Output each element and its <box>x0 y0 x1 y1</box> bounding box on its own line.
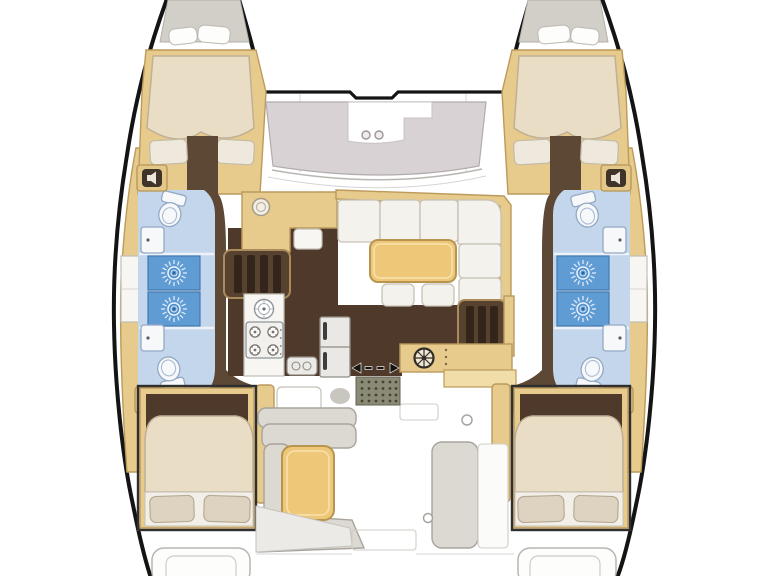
sink-drain <box>146 336 149 339</box>
cockpit-sink <box>330 388 350 404</box>
pillow <box>580 139 618 165</box>
sink-drain <box>618 238 621 241</box>
sofa-cushion <box>459 244 501 278</box>
sofa-cushion <box>338 200 380 242</box>
cupholder-icon <box>424 514 433 523</box>
companionway-steps-port <box>224 250 290 298</box>
bow-locker-starboard <box>519 0 608 46</box>
cockpit-table <box>282 446 334 520</box>
ottoman <box>382 284 414 306</box>
pillow <box>216 139 254 165</box>
pillow <box>513 139 551 165</box>
forward-berth-port <box>147 56 254 139</box>
galley-seat <box>294 229 322 249</box>
helm-wheel-icon <box>415 349 434 368</box>
forward-berth-starboard <box>514 56 621 139</box>
sink-drain <box>618 336 621 339</box>
stove <box>246 322 283 358</box>
swim-platform-starboard <box>518 548 616 576</box>
pillow <box>574 495 619 523</box>
sink-drain <box>146 238 149 241</box>
pillow <box>204 495 251 523</box>
head-compartments-starboard <box>553 190 630 394</box>
sofa-cushion <box>380 200 420 242</box>
cupholder-icon <box>462 415 472 425</box>
round-sink-icon <box>253 199 270 216</box>
sink-icon <box>141 227 164 253</box>
speaker-icon <box>137 165 167 191</box>
aft-cabin-port <box>138 386 256 530</box>
floorplan-svg <box>0 0 768 576</box>
shower-rose-icon <box>557 292 609 326</box>
pillow <box>518 495 565 523</box>
head-compartments-port <box>138 190 215 394</box>
shower-rose-icon <box>148 256 200 290</box>
aft-berth-starboard <box>515 416 623 492</box>
sink-icon <box>603 227 626 253</box>
sofa-corner-cushion <box>458 200 501 244</box>
foredeck-seat <box>266 102 486 175</box>
burner-icon <box>268 327 278 337</box>
refrigerator <box>320 317 350 377</box>
aft-berth-port <box>145 416 253 492</box>
cupholder-icon <box>375 131 383 139</box>
cockpit-panel <box>400 404 438 420</box>
aft-cabin-starboard <box>512 386 630 530</box>
sofa-cushion <box>420 200 458 242</box>
cockpit-bench-starboard <box>432 442 478 548</box>
pillow <box>149 139 187 165</box>
bow-locker-port <box>160 0 249 46</box>
speaker-icon <box>601 165 631 191</box>
galley-round-sink <box>255 300 274 319</box>
catamaran-floorplan <box>0 0 768 576</box>
ottoman <box>422 284 454 306</box>
sink-icon <box>141 325 164 351</box>
shower-rose-icon <box>557 256 609 290</box>
burner-icon <box>250 345 260 355</box>
sink-icon <box>603 325 626 351</box>
saloon-table <box>370 240 456 282</box>
burner-icon <box>268 345 278 355</box>
burner-icon <box>250 327 260 337</box>
floor-mat-grid-icon <box>356 377 400 405</box>
shower-rose-icon <box>148 292 200 326</box>
oven <box>287 357 317 375</box>
cockpit-panel-starboard <box>478 444 508 548</box>
pillow <box>150 495 195 523</box>
cupholder-icon <box>362 131 370 139</box>
